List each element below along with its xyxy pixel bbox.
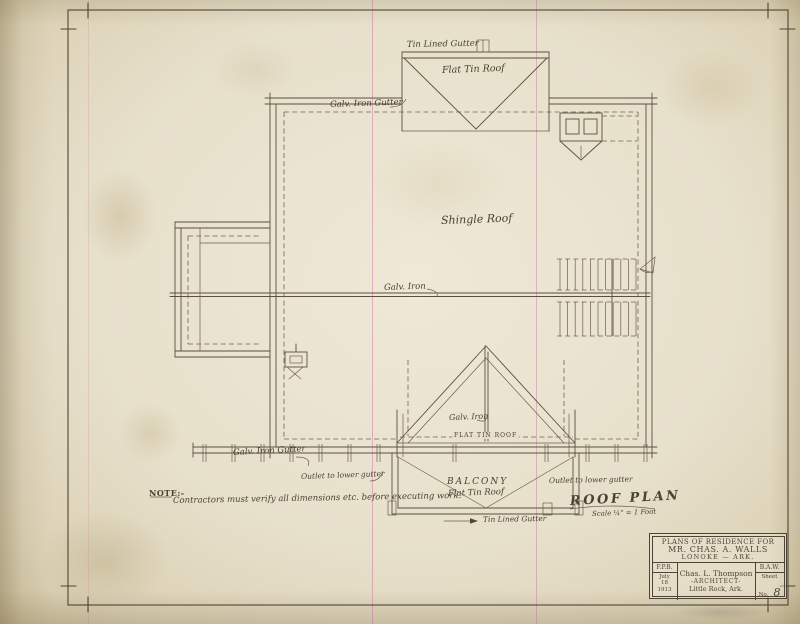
roof-deck-hatch (557, 259, 637, 336)
label-shingle-roof: Shingle Roof (441, 212, 513, 227)
drawing-sheet: Tin Lined Gutter Flat Tin Roof Galv. Iro… (0, 0, 800, 624)
label-flat-tin-roof-wall: FLAT TIN ROOF (452, 432, 519, 439)
flat-roof-bay (402, 40, 549, 131)
wall-lines-dashed (188, 112, 638, 439)
label-balcony: BALCONY (447, 477, 508, 487)
title-block-project: PLANS OF RESIDENCE FOR MR. CHAS. A. WALL… (653, 537, 784, 564)
project-line-3: LONOKE — ARK. (653, 554, 784, 562)
label-outlet-lower-gutter-right: Outlet to lower gutter (549, 475, 633, 485)
architect-cell: Chas. L. Thompson -ARCHITECT- Little Roc… (678, 563, 756, 600)
traced-by-initials: B.A.W. (756, 563, 784, 573)
architect-name: Chas. L. Thompson (678, 569, 755, 578)
label-flat-tin-roof-top: Flat Tin Roof (442, 63, 505, 76)
label-tin-lined-gutter-bottom: Tin Lined Gutter (483, 514, 546, 524)
date-cell: July 18 1913 (653, 573, 677, 593)
sheet-word: Sheet (756, 573, 784, 581)
label-galv-iron-ridge: Galv. Iron (384, 282, 426, 293)
title-block: PLANS OF RESIDENCE FOR MR. CHAS. A. WALL… (649, 533, 787, 599)
sheet-no-word: No. (759, 592, 769, 598)
leader-lines (150, 99, 655, 509)
left-wing (175, 222, 270, 357)
ridge-end-marker (640, 257, 655, 273)
roof-cupola (285, 344, 307, 379)
label-tin-lined-gutter-top: Tin Lined Gutter (407, 39, 479, 50)
sheet-number: 8 (773, 586, 780, 599)
drawn-by-cell: F.P.B. July 18 1913 (653, 563, 678, 600)
architect-city: Little Rock, Ark. (678, 586, 755, 594)
date-year: 1913 (653, 587, 677, 593)
roof-plan-drawing (0, 0, 800, 624)
ridge-line (170, 293, 650, 297)
drawn-by-initials: F.P.B. (653, 563, 677, 573)
sheet-cell: B.A.W. Sheet No. 8 (756, 563, 784, 600)
chimney (560, 113, 602, 160)
border-frame (61, 3, 795, 612)
main-roof-eaves (193, 93, 657, 458)
balcony-gable-roof (397, 346, 575, 457)
label-galv-iron-gable-ridge: Galv. Iron (449, 412, 489, 422)
